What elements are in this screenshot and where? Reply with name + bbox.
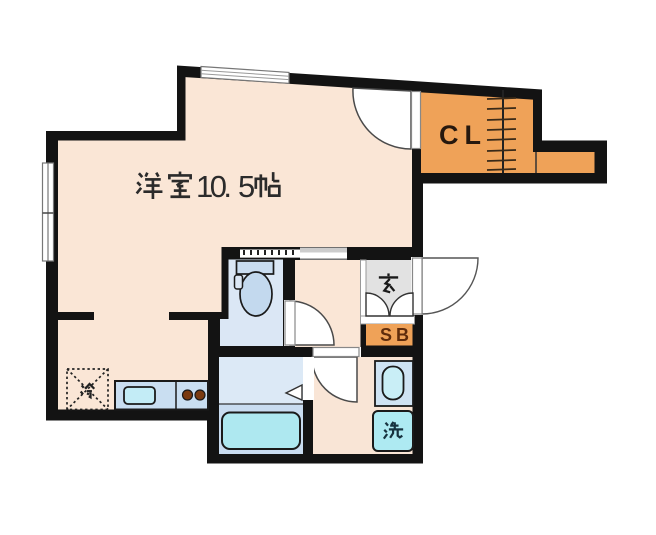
svg-text:5: 5 — [238, 169, 255, 204]
svg-text:10.: 10. — [196, 169, 232, 204]
svg-text:SB: SB — [380, 325, 413, 345]
svg-text:CL: CL — [439, 120, 487, 150]
